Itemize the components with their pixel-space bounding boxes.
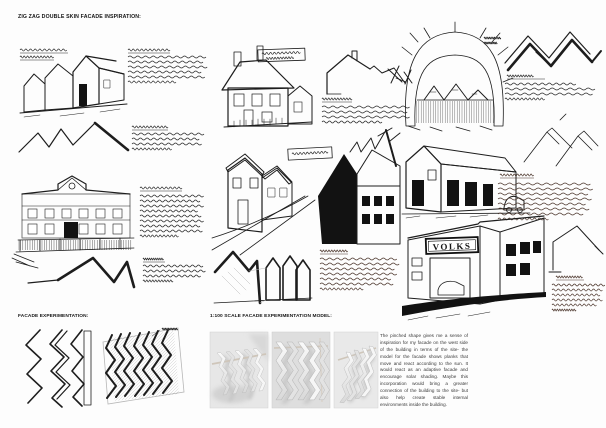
sketchbook-page: ZIG ZAG DOUBLE SKIN FACADE INSPIRATION: … — [0, 0, 606, 428]
sketch-volks-garage: VOLKS — [402, 216, 546, 320]
facade-fin-perspective — [103, 328, 184, 404]
sketch-gable-studies — [214, 250, 399, 303]
sketch-roofline-study-1 — [322, 51, 412, 123]
volks-sign-text: VOLKS — [432, 241, 471, 252]
handwritten-site-label — [20, 49, 68, 60]
facade-zigzag-studies — [26, 330, 91, 407]
sketches-overlay: VOLKS — [0, 0, 606, 428]
sketch-railway-arch — [396, 22, 513, 131]
sketch-industrial-sheds — [20, 49, 127, 117]
sketch-roofline-study-3 — [549, 226, 605, 311]
sketch-street-perspective — [212, 128, 400, 255]
sketch-zigzag-profile-2 — [28, 258, 205, 287]
handwritten-note-block — [128, 49, 207, 83]
sketch-warehouse — [402, 146, 530, 218]
volks-sign: VOLKS — [426, 237, 478, 254]
sketch-theatre-facade — [12, 176, 134, 268]
sketch-brick-house — [222, 46, 312, 127]
sketch-bold-zigzag — [505, 32, 601, 100]
boxed-label — [288, 147, 333, 160]
handwritten-note-block — [140, 187, 204, 237]
sketch-roofline-study-2 — [524, 114, 598, 166]
model-photo-2 — [272, 332, 330, 408]
model-photo-1 — [210, 332, 268, 408]
model-photo-3 — [334, 332, 378, 408]
sketch-zigzag-profile-1 — [19, 123, 204, 152]
